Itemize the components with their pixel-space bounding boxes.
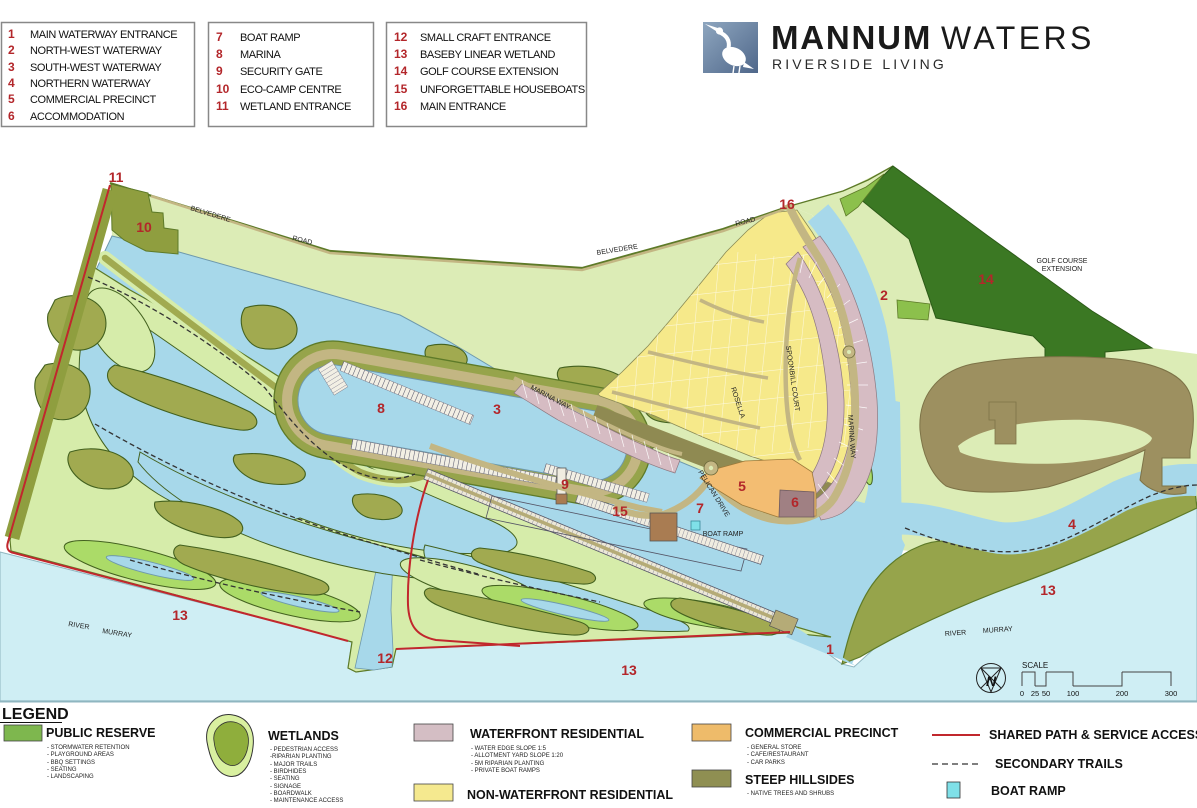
svg-text:BASEBY LINEAR WETLAND: BASEBY LINEAR WETLAND (420, 49, 556, 61)
svg-text:12: 12 (394, 30, 408, 44)
svg-text:50: 50 (1042, 689, 1050, 698)
svg-text:16: 16 (779, 196, 795, 212)
svg-text:12: 12 (377, 650, 393, 666)
svg-text:4: 4 (1068, 516, 1076, 532)
svg-text:15: 15 (394, 82, 408, 96)
svg-text:- BBQ SETTINGS: - BBQ SETTINGS (47, 760, 95, 766)
svg-text:9: 9 (561, 476, 569, 492)
svg-text:10: 10 (136, 219, 152, 235)
svg-text:6: 6 (8, 109, 15, 123)
svg-text:LEGEND: LEGEND (2, 706, 69, 723)
svg-text:11: 11 (216, 99, 229, 113)
svg-text:9: 9 (216, 64, 223, 78)
svg-text:7: 7 (216, 30, 223, 44)
svg-text:WATERS: WATERS (941, 20, 1095, 56)
svg-text:N: N (986, 673, 997, 689)
svg-text:10: 10 (216, 82, 230, 96)
svg-text:- BIRDHIDES: - BIRDHIDES (270, 769, 306, 775)
svg-text:- CAFE/RESTAURANT: - CAFE/RESTAURANT (747, 752, 809, 758)
svg-text:13: 13 (172, 607, 188, 623)
svg-text:- PRIVATE BOAT RAMPS: - PRIVATE BOAT RAMPS (471, 768, 540, 774)
svg-text:2: 2 (8, 43, 15, 57)
svg-text:PUBLIC RESERVE: PUBLIC RESERVE (46, 726, 156, 740)
svg-text:100: 100 (1067, 689, 1080, 698)
svg-text:4: 4 (8, 76, 15, 90)
svg-text:UNFORGETTABLE HOUSEBOATS: UNFORGETTABLE HOUSEBOATS (420, 84, 585, 96)
svg-text:- SEATING: - SEATING (270, 776, 300, 782)
svg-text:- GENERAL STORE: - GENERAL STORE (747, 745, 801, 751)
svg-text:6: 6 (791, 494, 799, 510)
svg-text:300: 300 (1165, 689, 1178, 698)
svg-text:25: 25 (1031, 689, 1039, 698)
svg-text:WETLAND ENTRANCE: WETLAND ENTRANCE (240, 101, 351, 113)
svg-text:- MAINTENANCE ACCESS: - MAINTENANCE ACCESS (270, 798, 343, 804)
svg-text:8: 8 (216, 47, 223, 61)
svg-text:- PEDESTRIAN ACCESS: - PEDESTRIAN ACCESS (270, 747, 338, 753)
svg-text:MAIN ENTRANCE: MAIN ENTRANCE (420, 101, 506, 113)
svg-text:- BOARDWALK: - BOARDWALK (270, 791, 312, 797)
svg-text:STEEP HILLSIDES: STEEP HILLSIDES (745, 773, 855, 787)
svg-text:15: 15 (612, 503, 628, 519)
svg-text:NON-WATERFRONT RESIDENTIAL: NON-WATERFRONT RESIDENTIAL (467, 788, 673, 802)
svg-text:- CAR PARKS: - CAR PARKS (747, 760, 785, 766)
svg-text:- SEATING: - SEATING (47, 767, 77, 773)
svg-text:BOAT RAMP: BOAT RAMP (991, 784, 1066, 798)
svg-text:- WATER EDGE SLOPE 1:5: - WATER EDGE SLOPE 1:5 (471, 746, 547, 752)
svg-text:RIVER: RIVER (945, 630, 967, 638)
svg-text:SMALL CRAFT ENTRANCE: SMALL CRAFT ENTRANCE (420, 32, 551, 44)
svg-text:RIVERSIDE LIVING: RIVERSIDE LIVING (772, 56, 947, 72)
svg-text:MARINA: MARINA (240, 49, 281, 61)
svg-text:- ALLOTMENT YARD SLOPE 1:20: - ALLOTMENT YARD SLOPE 1:20 (471, 753, 564, 759)
svg-text:SECURITY GATE: SECURITY GATE (240, 66, 322, 78)
svg-text:SECONDARY TRAILS: SECONDARY TRAILS (995, 757, 1123, 771)
svg-text:BOAT RAMP: BOAT RAMP (240, 32, 300, 44)
svg-text:MANNUM: MANNUM (771, 19, 932, 56)
svg-text:MAIN WATERWAY ENTRANCE: MAIN WATERWAY ENTRANCE (30, 29, 177, 41)
svg-text:NORTHERN WATERWAY: NORTHERN WATERWAY (30, 78, 152, 90)
svg-text:14: 14 (978, 271, 994, 287)
svg-text:5: 5 (738, 478, 746, 494)
svg-text:ECO-CAMP CENTRE: ECO-CAMP CENTRE (240, 84, 341, 96)
svg-text:- SIGNAGE: - SIGNAGE (270, 784, 301, 790)
svg-text:- PLAYGROUND AREAS: - PLAYGROUND AREAS (47, 752, 114, 758)
svg-text:5: 5 (8, 92, 15, 106)
svg-text:14: 14 (394, 64, 408, 78)
svg-text:0: 0 (1020, 689, 1024, 698)
svg-text:3: 3 (8, 60, 15, 74)
svg-text:8: 8 (377, 400, 385, 416)
svg-text:GOLF COURSE EXTENSION: GOLF COURSE EXTENSION (420, 66, 559, 78)
svg-text:7: 7 (696, 500, 704, 516)
svg-text:13: 13 (621, 662, 637, 678)
svg-text:NORTH-WEST WATERWAY: NORTH-WEST WATERWAY (30, 45, 163, 57)
svg-text:SOUTH-WEST WATERWAY: SOUTH-WEST WATERWAY (30, 62, 162, 74)
svg-text:SHARED PATH & SERVICE ACCESS: SHARED PATH & SERVICE ACCESS (989, 728, 1197, 742)
svg-text:3: 3 (493, 401, 501, 417)
svg-text:COMMERCIAL PRECINCT: COMMERCIAL PRECINCT (745, 726, 899, 740)
svg-text:16: 16 (394, 99, 408, 113)
svg-text:EXTENSION: EXTENSION (1042, 266, 1082, 273)
svg-text:13: 13 (394, 47, 408, 61)
svg-text:200: 200 (1116, 689, 1129, 698)
svg-text:11: 11 (109, 169, 124, 185)
svg-text:COMMERCIAL PRECINCT: COMMERCIAL PRECINCT (30, 94, 157, 106)
svg-text:- 5M RIPARIAN PLANTING: - 5M RIPARIAN PLANTING (471, 761, 545, 767)
svg-text:1: 1 (826, 641, 834, 657)
svg-text:WETLANDS: WETLANDS (268, 729, 339, 743)
svg-text:- MAJOR TRAILS: - MAJOR TRAILS (270, 762, 317, 768)
svg-text:GOLF COURSE: GOLF COURSE (1037, 258, 1088, 265)
svg-text:ACCOMMODATION: ACCOMMODATION (30, 111, 125, 123)
svg-text:BOAT RAMP: BOAT RAMP (703, 531, 744, 538)
svg-text:2: 2 (880, 287, 888, 303)
svg-text:SCALE: SCALE (1022, 661, 1048, 670)
svg-text:1: 1 (8, 27, 15, 41)
svg-text:- STORMWATER RETENTION: - STORMWATER RETENTION (47, 745, 130, 751)
svg-text:- NATIVE TREES AND SHRUBS: - NATIVE TREES AND SHRUBS (747, 791, 834, 797)
svg-text:-RIPARIAN PLANTING: -RIPARIAN PLANTING (270, 754, 332, 760)
svg-text:- LANDSCAPING: - LANDSCAPING (47, 774, 94, 780)
svg-text:WATERFRONT RESIDENTIAL: WATERFRONT RESIDENTIAL (470, 727, 644, 741)
svg-text:13: 13 (1040, 582, 1056, 598)
